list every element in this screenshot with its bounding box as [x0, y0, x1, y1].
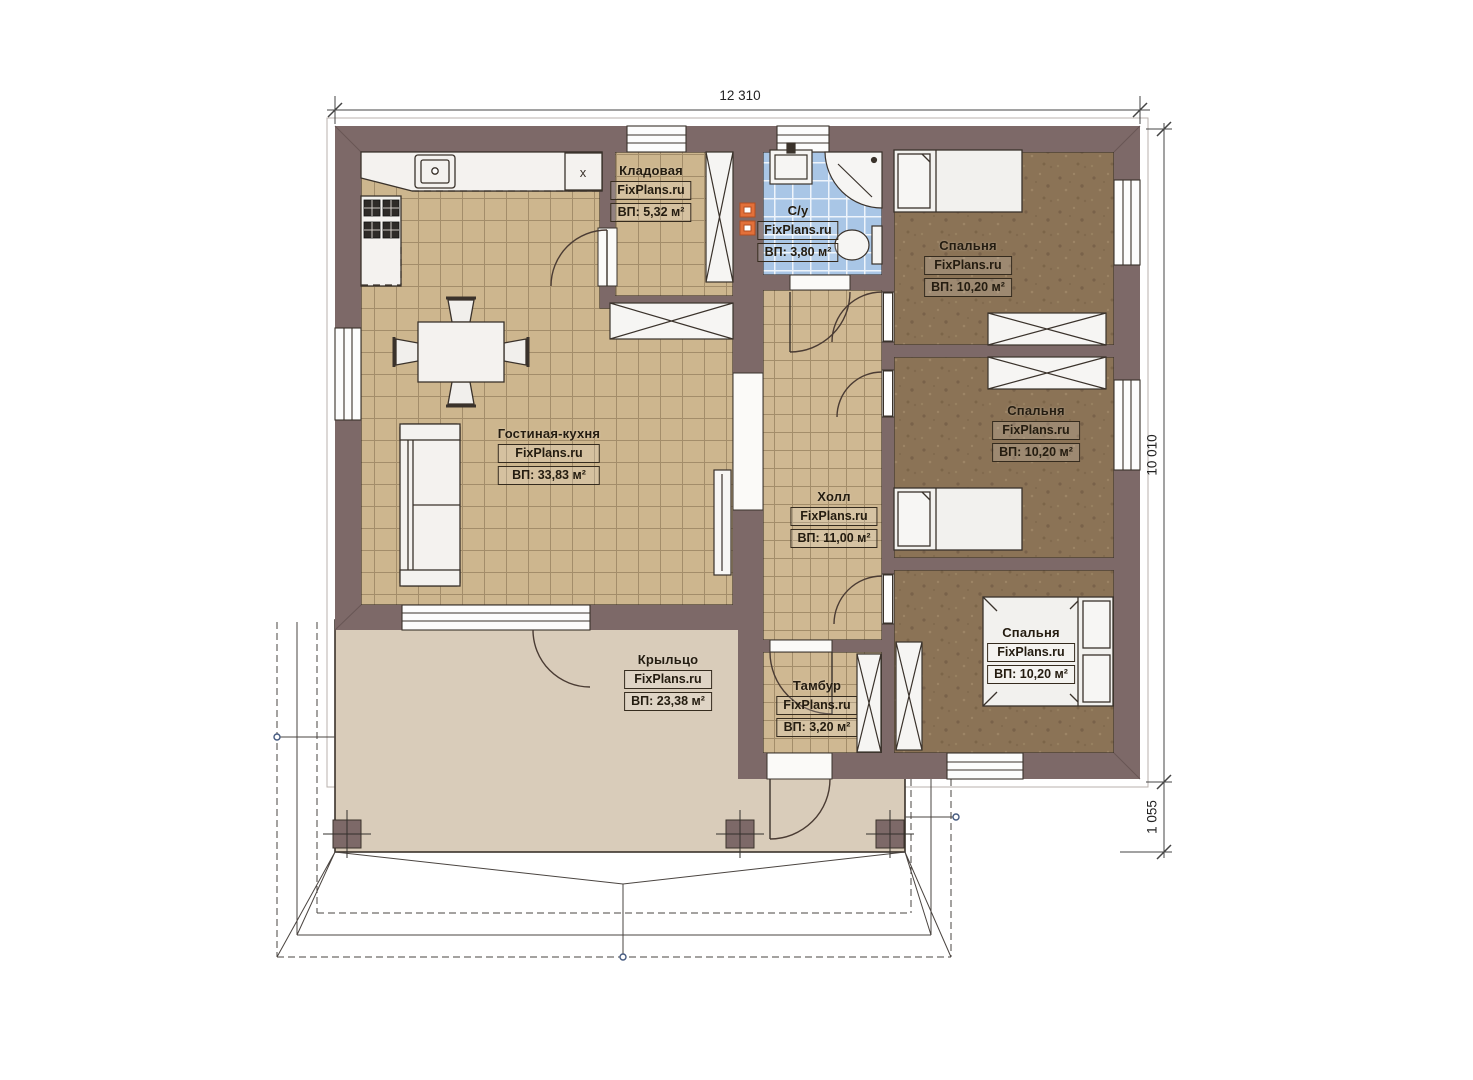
window [627, 126, 686, 152]
closet-tall [706, 152, 733, 282]
dimension-width-label: 12 310 [719, 88, 760, 103]
floor-plan-drawing: x [0, 0, 1473, 1080]
wall-bedrooms [882, 417, 894, 574]
porch-glass-door [402, 605, 590, 630]
window [1114, 180, 1140, 265]
wall-bedroom2-3 [882, 558, 1114, 570]
wall-bottom [832, 753, 947, 779]
kitchen-appliance-marker: x [580, 165, 587, 180]
sofa [400, 424, 460, 586]
living-hall-passage [733, 373, 763, 510]
table-top [418, 322, 504, 382]
chair [448, 382, 474, 404]
window [335, 328, 361, 420]
window [777, 126, 829, 152]
window [1114, 380, 1140, 470]
wall-bedrooms [882, 624, 894, 753]
wall-vestibule-top [832, 640, 882, 652]
wall-bottom [1023, 753, 1140, 779]
wall-bedrooms [882, 152, 894, 292]
wall-bathroom-bottom [850, 275, 882, 290]
floor-plan-page: x Гостиная-кухня FixPlans.ru ВП: 33,83 м… [0, 0, 1473, 1080]
wall-bottom [738, 753, 767, 779]
tv-console [714, 470, 731, 575]
wall-central [733, 152, 763, 373]
wall-bathroom-bottom [763, 275, 790, 290]
wardrobe [988, 313, 1106, 345]
wall-top [335, 126, 1140, 152]
chair [504, 339, 526, 365]
wall-bedroom1-2 [882, 345, 1114, 357]
wardrobe [857, 654, 881, 752]
wall-vestibule-left [738, 630, 763, 755]
wall-central [733, 510, 763, 605]
bed-double [983, 597, 1113, 706]
wall-vestibule-top [763, 640, 770, 652]
dimension-height-label: 10 010 [1145, 434, 1160, 475]
window [947, 753, 1023, 779]
bed-single [894, 488, 1022, 550]
wall-living-bottom [590, 605, 763, 630]
wardrobe [610, 303, 733, 339]
chair [448, 300, 474, 322]
wardrobe [988, 357, 1106, 389]
entrance-door-opening [767, 753, 832, 779]
chair [396, 339, 418, 365]
bed-single [894, 150, 1022, 212]
wall-living-bottom [335, 605, 402, 630]
kitchen-sink [415, 155, 455, 188]
dimension-porch-label: 1 055 [1145, 800, 1160, 834]
bathroom-door-opening [790, 275, 850, 290]
wardrobe [896, 642, 922, 750]
vestibule-door-opening [770, 640, 832, 652]
